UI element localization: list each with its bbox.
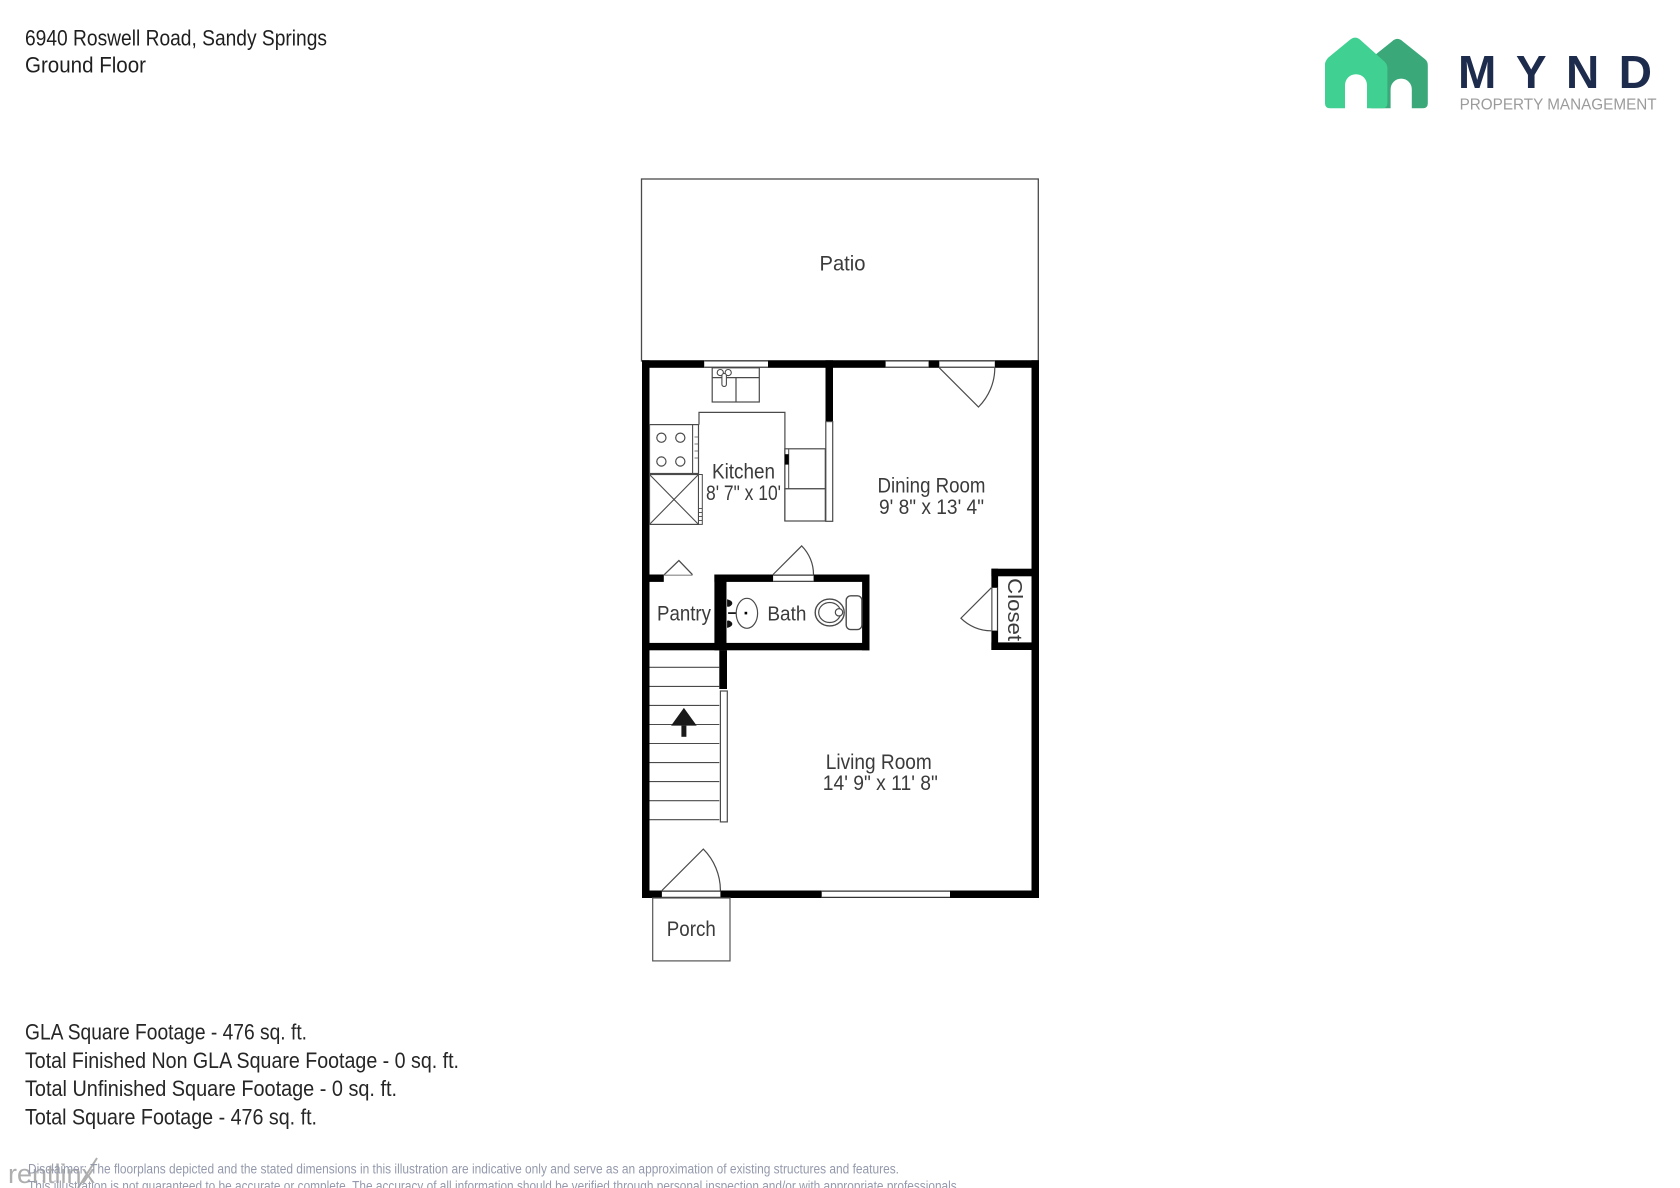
svg-text:Living Room: Living Room	[826, 751, 932, 774]
svg-text:8' 7" x 10': 8' 7" x 10'	[706, 482, 781, 505]
svg-text:Pantry: Pantry	[657, 603, 711, 626]
svg-text:Ground Floor: Ground Floor	[25, 53, 146, 78]
svg-text:6940 Roswell Road, Sandy Sprin: 6940 Roswell Road, Sandy Springs	[25, 26, 327, 51]
svg-text:Porch: Porch	[667, 918, 716, 941]
svg-text:Closet: Closet	[1003, 578, 1025, 641]
svg-text:9' 8" x 13' 4": 9' 8" x 13' 4"	[879, 496, 984, 519]
svg-text:Bath: Bath	[767, 604, 806, 626]
svg-text:Patio: Patio	[820, 253, 866, 276]
svg-text:Total Unfinished Square Footag: Total Unfinished Square Footage - 0 sq. …	[25, 1076, 397, 1101]
svg-text:Total Square Footage - 476 sq.: Total Square Footage - 476 sq. ft.	[25, 1105, 317, 1130]
svg-text:MYND: MYND	[1458, 46, 1671, 98]
svg-text:14' 9" x 11' 8": 14' 9" x 11' 8"	[823, 772, 938, 795]
svg-text:Total Finished Non GLA Square: Total Finished Non GLA Square Footage - …	[25, 1048, 459, 1073]
svg-text:This illustration is not guara: This illustration is not guaranteed to b…	[28, 1179, 960, 1188]
svg-text:GLA Square Footage - 476 sq. f: GLA Square Footage - 476 sq. ft.	[25, 1019, 307, 1044]
svg-text:Dining Room: Dining Room	[878, 475, 986, 498]
svg-text:PROPERTY MANAGEMENT: PROPERTY MANAGEMENT	[1460, 97, 1658, 114]
svg-text:Kitchen: Kitchen	[712, 461, 775, 484]
svg-text:Disclaimer: The floorplans dep: Disclaimer: The floorplans depicted and …	[28, 1162, 899, 1177]
